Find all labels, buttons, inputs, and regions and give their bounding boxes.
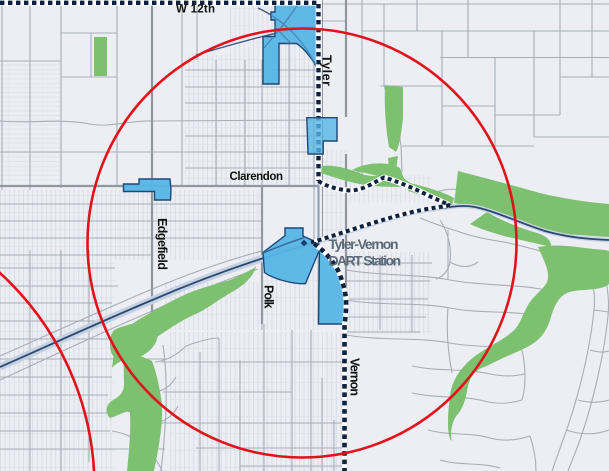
svg-text:Vernon: Vernon — [348, 358, 362, 396]
svg-text:DART Station: DART Station — [329, 253, 402, 269]
svg-text:W 12th: W 12th — [176, 4, 215, 16]
svg-text:Tyler: Tyler — [320, 55, 334, 86]
svg-text:Clarendon: Clarendon — [230, 171, 284, 183]
svg-text:Tyler-Vernon: Tyler-Vernon — [329, 236, 399, 252]
svg-text:Edgefield: Edgefield — [155, 218, 169, 270]
svg-text:Polk: Polk — [262, 285, 276, 309]
